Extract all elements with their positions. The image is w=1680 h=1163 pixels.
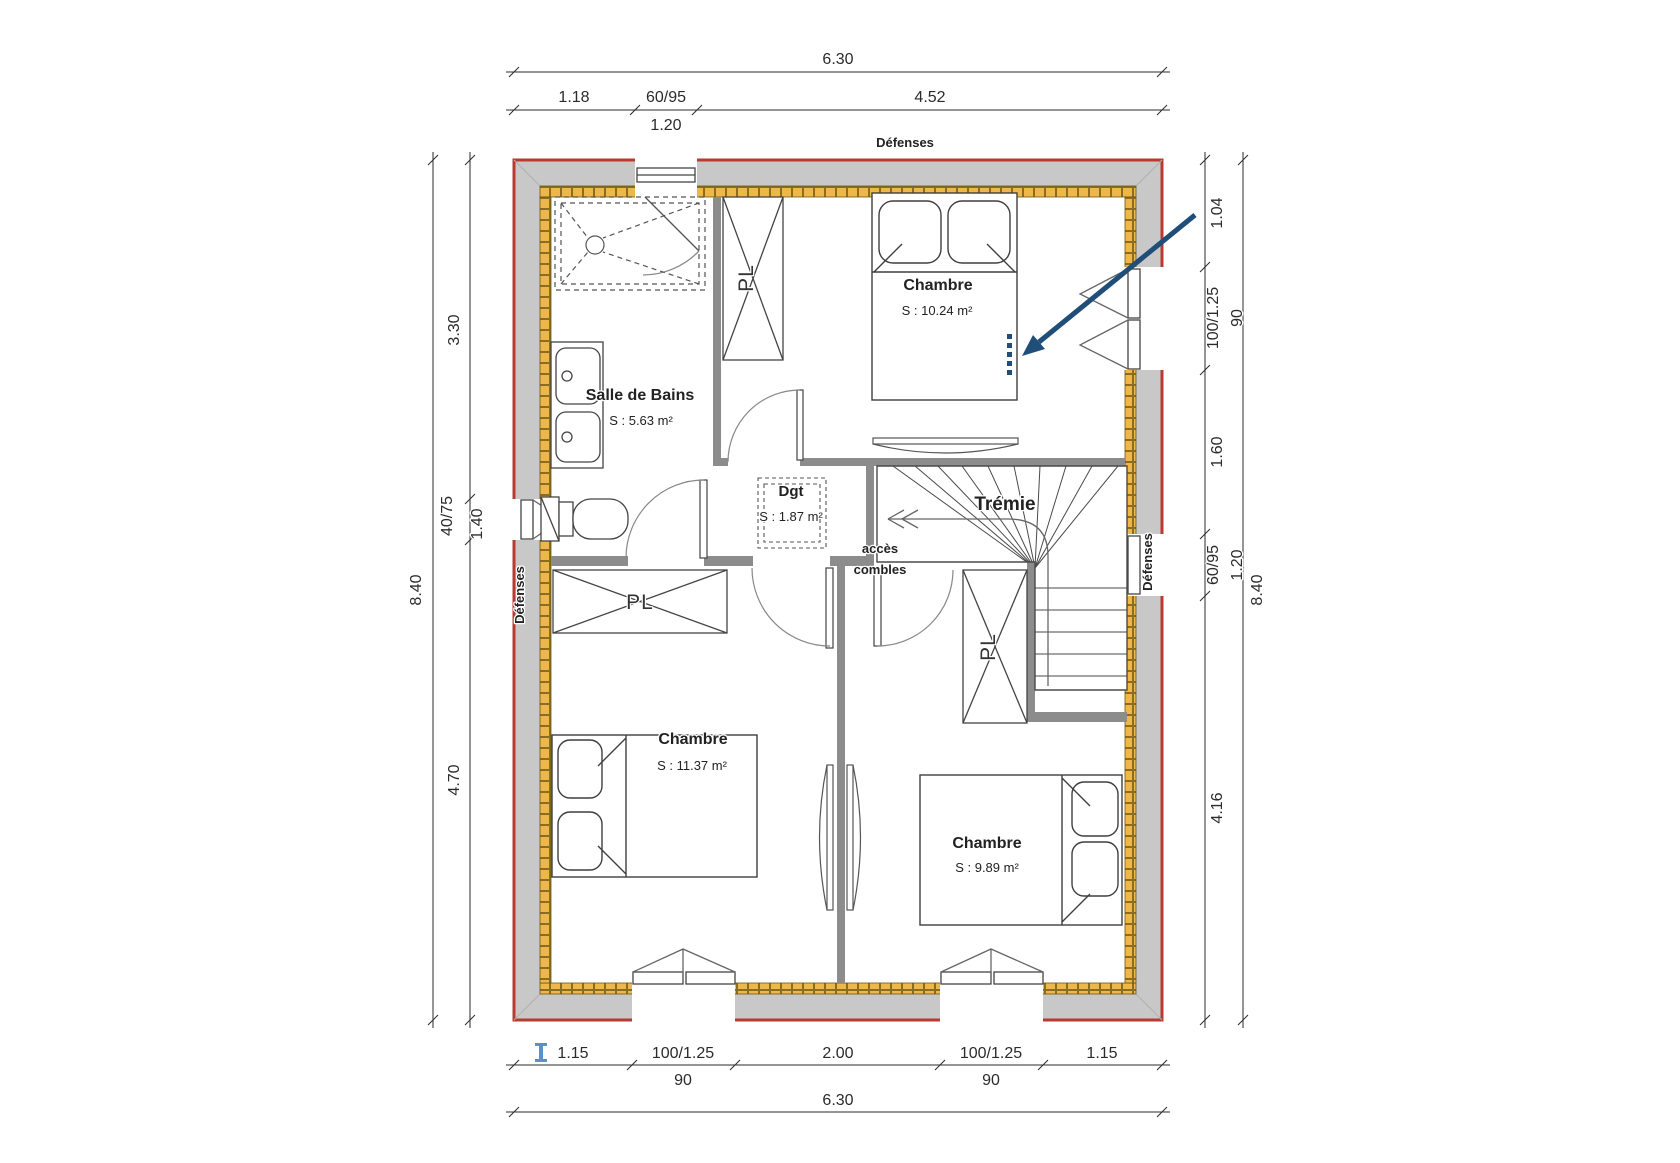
dim-bottom-window1: 100/1.25	[652, 1045, 714, 1062]
closet-top-label: PL	[735, 264, 758, 292]
dim-left-axis: 1.40	[469, 508, 486, 539]
defenses-right-label: Défenses	[1140, 533, 1155, 591]
floor-plan-drawing: 6.30 1.18 60/95 1.20 4.52 Défenses 1.15 …	[0, 0, 1680, 1163]
closet-bottom-label: PL	[977, 633, 1000, 661]
dgt-area: S : 1.87 m²	[759, 509, 823, 524]
closet-left-label: PL	[626, 591, 654, 614]
acces-combles-label-1: accès	[862, 541, 898, 556]
dim-bottom-window2: 100/1.25	[960, 1045, 1022, 1062]
dim-right-window2: 60/95	[1205, 545, 1222, 585]
dim-left-2: 4.70	[446, 764, 463, 795]
defenses-left-label: Défenses	[512, 566, 527, 624]
dim-bottom-2: 2.00	[822, 1045, 853, 1062]
dim-bottom-3: 1.15	[1086, 1045, 1117, 1062]
defenses-top-label: Défenses	[876, 135, 934, 150]
bedroom-right-name: Chambre	[952, 835, 1021, 852]
dim-bottom-total: 6.30	[822, 1092, 853, 1109]
tremie-label: Trémie	[974, 494, 1035, 515]
bedroom-left-area: S : 11.37 m²	[657, 758, 728, 773]
bedroom-right-area: S : 9.89 m²	[955, 860, 1019, 875]
dim-right-axis2: 1.20	[1229, 549, 1246, 580]
text-cursor-artifact	[535, 1043, 547, 1062]
bedroom-top-name: Chambre	[903, 277, 972, 294]
dim-right-3: 4.16	[1209, 792, 1226, 823]
bed-bottom-left	[552, 735, 757, 877]
bedroom-left-name: Chambre	[658, 731, 727, 748]
acces-combles-label-2: combles	[854, 562, 907, 577]
window-top-60-95	[637, 168, 695, 182]
bathroom-name: Salle de Bains	[586, 387, 695, 404]
dim-left-1: 3.30	[446, 314, 463, 345]
dim-right-axis1: 90	[1229, 309, 1246, 327]
dim-right-total: 8.40	[1249, 574, 1266, 605]
dim-bottom-1: 1.15	[557, 1045, 588, 1062]
dim-top-2: 4.52	[914, 89, 945, 106]
dim-top-total: 6.30	[822, 51, 853, 68]
dim-left-window: 40/75	[439, 496, 456, 536]
bedroom-top-area: S : 10.24 m²	[902, 303, 973, 318]
dgt-name: Dgt	[779, 483, 804, 500]
dim-top-axis: 1.20	[650, 117, 681, 134]
dim-bottom-axis2: 90	[982, 1072, 1000, 1089]
double-sink	[551, 342, 603, 468]
dim-right-1: 1.04	[1209, 197, 1226, 228]
dim-right-2: 1.60	[1209, 436, 1226, 467]
bathroom-area: S : 5.63 m²	[609, 413, 673, 428]
dim-top-window: 60/95	[646, 89, 686, 106]
floor-plan-canvas: 6.30 1.18 60/95 1.20 4.52 Défenses 1.15 …	[0, 0, 1680, 1163]
dim-top-1: 1.18	[558, 89, 589, 106]
bed-top	[872, 193, 1017, 400]
dim-right-window1: 100/1.25	[1205, 287, 1222, 349]
dim-bottom-axis1: 90	[674, 1072, 692, 1089]
toilet	[541, 497, 628, 541]
dim-left-total: 8.40	[408, 574, 425, 605]
